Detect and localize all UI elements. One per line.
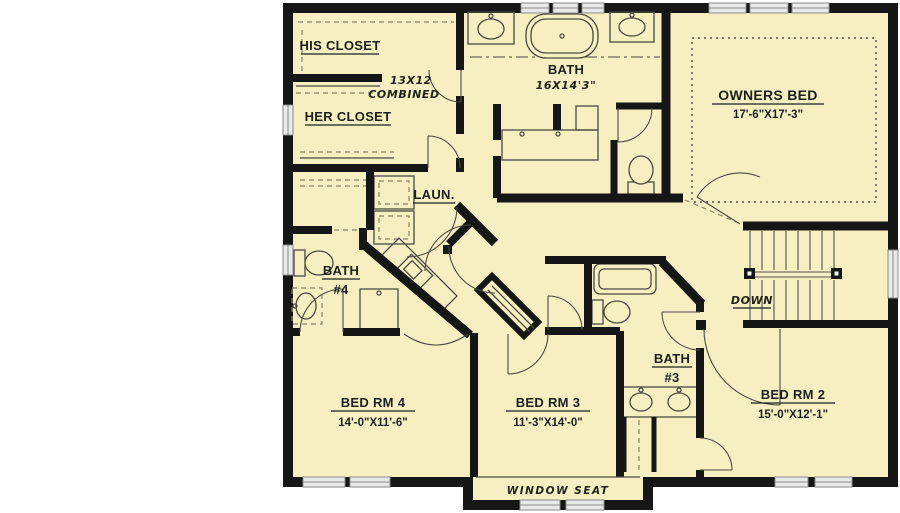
window bbox=[750, 3, 788, 13]
bathtub-owners bbox=[526, 13, 598, 58]
bed3-dims: 11'-3"X14'-0" bbox=[513, 417, 582, 429]
bath3-label: BATH bbox=[654, 351, 690, 366]
bed2-label: BED RM 2 bbox=[761, 387, 826, 402]
her-closet-label: HER CLOSET bbox=[305, 109, 392, 124]
owners-bath-dims: 16X14'3" bbox=[536, 79, 597, 92]
down-label: DOWN bbox=[731, 294, 773, 307]
owners-bed-label: OWNERS BED bbox=[718, 87, 817, 103]
window bbox=[709, 3, 746, 13]
window bbox=[520, 500, 560, 510]
window bbox=[888, 250, 898, 298]
window bbox=[350, 477, 390, 487]
window bbox=[283, 245, 293, 275]
owners-bed-dims: 17'-6"X17'-3" bbox=[733, 109, 803, 121]
toilet-owners-wc bbox=[628, 156, 654, 194]
bath4-number: #4 bbox=[333, 282, 349, 297]
bath4-label: BATH bbox=[323, 263, 359, 278]
window bbox=[303, 477, 345, 487]
room-her-closet: HER CLOSET bbox=[305, 109, 392, 125]
room-laundry: LAUN. bbox=[413, 187, 455, 203]
room-his-closet: HIS CLOSET bbox=[299, 38, 380, 54]
laundry-label: LAUN. bbox=[413, 187, 454, 202]
window bbox=[283, 105, 293, 135]
window bbox=[566, 500, 604, 510]
combined-dims: 13X12 bbox=[390, 74, 432, 87]
bath3-number: #3 bbox=[664, 370, 679, 385]
bed4-label: BED RM 4 bbox=[341, 395, 406, 410]
bed2-dims: 15'-0"X12'-1" bbox=[758, 409, 828, 421]
window bbox=[775, 477, 808, 487]
window-seat: WINDOW SEAT bbox=[507, 485, 610, 497]
window bbox=[792, 3, 829, 13]
his-closet-label: HIS CLOSET bbox=[299, 38, 380, 53]
window-seat-label: WINDOW SEAT bbox=[507, 485, 610, 497]
bed4-dims: 14'-0"X11'-6" bbox=[338, 417, 407, 429]
floor-plan-page: HIS CLOSET 13X12 COMBINED HER CLOSET BAT… bbox=[0, 0, 900, 513]
bathtub-bath3 bbox=[594, 264, 656, 294]
floor-plan-drawing: HIS CLOSET 13X12 COMBINED HER CLOSET BAT… bbox=[0, 0, 900, 513]
window bbox=[521, 3, 549, 13]
combined-label: COMBINED bbox=[368, 88, 440, 101]
owners-bath-label: BATH bbox=[548, 62, 584, 77]
window bbox=[815, 477, 852, 487]
bed3-label: BED RM 3 bbox=[516, 395, 581, 410]
window bbox=[582, 3, 604, 13]
stairs-down-label: DOWN bbox=[731, 294, 773, 308]
window bbox=[553, 3, 578, 13]
toilet-bath3 bbox=[592, 300, 630, 324]
